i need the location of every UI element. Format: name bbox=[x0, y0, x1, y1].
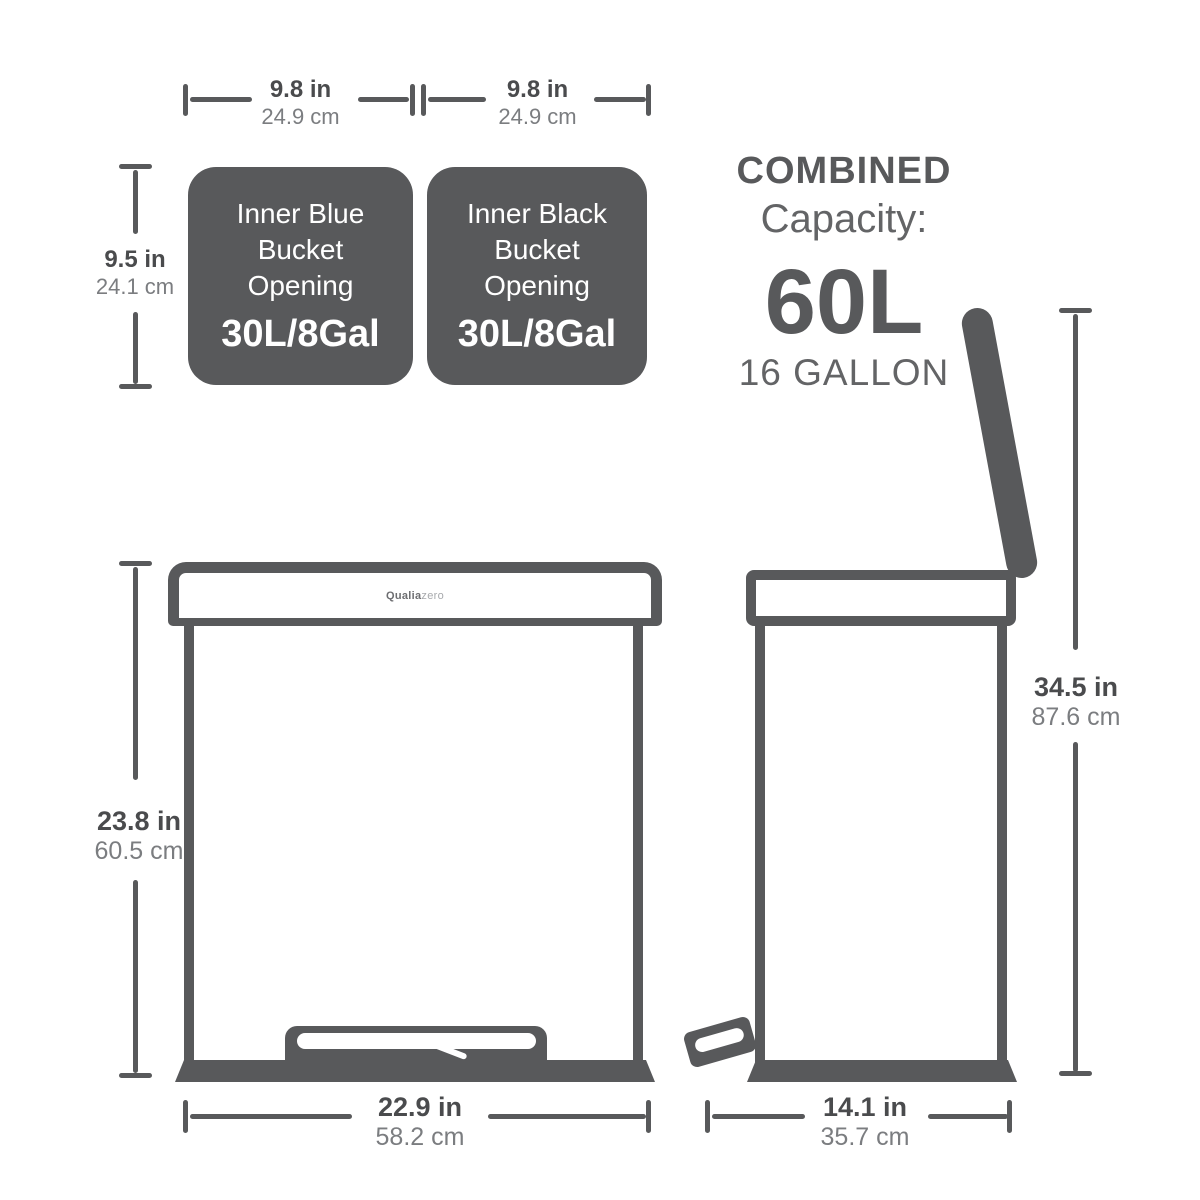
dim-line bbox=[190, 1114, 352, 1119]
combined-capacity-callout: COMBINED Capacity: 60L 16 GALLON bbox=[704, 150, 984, 394]
dim-label-front-height: 23.8 in 60.5 cm bbox=[85, 806, 193, 866]
dim-label-front-width: 22.9 in 58.2 cm bbox=[355, 1092, 485, 1152]
dim-tick bbox=[646, 84, 651, 116]
front-pedal-slot bbox=[297, 1033, 536, 1049]
dim-line bbox=[1073, 314, 1078, 650]
dim-label-opening-left-width: 9.8 in 24.9 cm bbox=[238, 76, 363, 129]
dim-line bbox=[1073, 742, 1078, 1072]
combined-subtitle: Capacity: bbox=[704, 197, 984, 242]
bucket-text-line: Opening bbox=[248, 268, 354, 304]
dim-line bbox=[712, 1114, 805, 1119]
bucket-text-line: Opening bbox=[484, 268, 590, 304]
dim-tick bbox=[1007, 1100, 1012, 1133]
dim-cap bbox=[119, 164, 152, 169]
combined-title: COMBINED bbox=[704, 150, 984, 193]
dim-cap bbox=[119, 561, 152, 566]
inner-black-bucket-box: Inner Black Bucket Opening 30L/8Gal bbox=[427, 167, 647, 385]
dim-cap bbox=[119, 384, 152, 389]
dim-line bbox=[133, 312, 138, 384]
dim-line bbox=[133, 170, 138, 234]
dim-line bbox=[133, 567, 138, 780]
inner-blue-bucket-box: Inner Blue Bucket Opening 30L/8Gal bbox=[188, 167, 413, 385]
dim-line bbox=[133, 880, 138, 1073]
front-base bbox=[175, 1060, 655, 1082]
side-right-wall bbox=[997, 624, 1007, 1064]
dim-cap bbox=[119, 1073, 152, 1078]
product-dimensions-diagram: 9.8 in 24.9 cm 9.8 in 24.9 cm 9.5 in 24.… bbox=[0, 0, 1200, 1200]
dim-line bbox=[594, 97, 646, 102]
bucket-text-line: Bucket bbox=[258, 232, 344, 268]
side-base bbox=[747, 1060, 1017, 1082]
open-lid bbox=[959, 305, 1039, 580]
combined-value: 60L bbox=[704, 256, 984, 348]
dim-tick bbox=[646, 1100, 651, 1133]
brand-logo: Qualiazero bbox=[386, 590, 444, 602]
front-right-wall bbox=[633, 624, 643, 1064]
dim-label-opening-right-width: 9.8 in 24.9 cm bbox=[475, 76, 600, 129]
dim-label-side-height: 34.5 in 87.6 cm bbox=[1021, 672, 1131, 732]
dim-line bbox=[488, 1114, 646, 1119]
bucket-text-line: Inner Black bbox=[467, 196, 607, 232]
dim-tick bbox=[410, 84, 415, 116]
dim-cap bbox=[1059, 1071, 1092, 1076]
side-pedal bbox=[682, 1015, 757, 1068]
side-left-wall bbox=[755, 624, 765, 1064]
dim-tick bbox=[183, 84, 188, 116]
dim-line bbox=[928, 1114, 1008, 1119]
bucket-text-line: Inner Blue bbox=[237, 196, 365, 232]
combined-gallons: 16 GALLON bbox=[704, 352, 984, 394]
bucket-capacity: 30L/8Gal bbox=[221, 312, 379, 356]
dim-tick bbox=[183, 1100, 188, 1133]
dim-cap bbox=[1059, 308, 1092, 313]
dim-label-opening-height: 9.5 in 24.1 cm bbox=[89, 246, 181, 299]
bucket-capacity: 30L/8Gal bbox=[458, 312, 616, 356]
side-pedal-slot bbox=[693, 1026, 745, 1053]
dim-line bbox=[358, 97, 409, 102]
side-rim bbox=[746, 570, 1016, 626]
bucket-text-line: Bucket bbox=[494, 232, 580, 268]
dim-tick bbox=[705, 1100, 710, 1133]
dim-label-side-depth: 14.1 in 35.7 cm bbox=[800, 1092, 930, 1152]
front-lid: Qualiazero bbox=[168, 562, 662, 626]
dim-tick bbox=[421, 84, 426, 116]
